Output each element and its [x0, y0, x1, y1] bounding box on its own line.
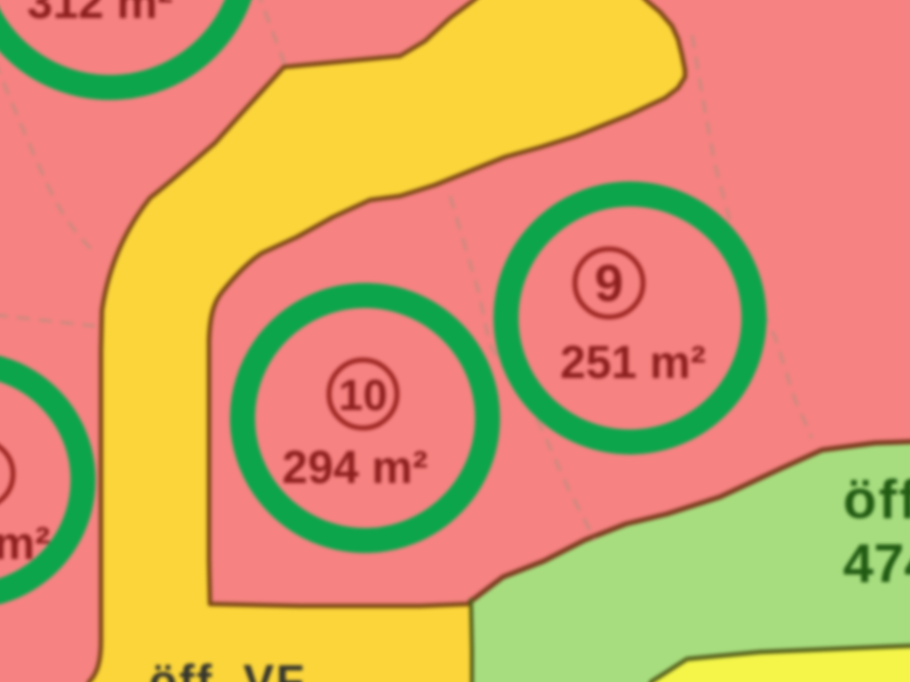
svg-text:474: 474 [843, 532, 910, 594]
svg-text:294 m²: 294 m² [282, 441, 428, 493]
svg-text:312 m²: 312 m² [27, 0, 173, 28]
svg-text:öff: öff [843, 468, 910, 530]
svg-text:251 m²: 251 m² [560, 336, 706, 388]
svg-text:öff. VF: öff. VF [149, 655, 306, 682]
svg-text:m²: m² [0, 517, 50, 569]
svg-text:9: 9 [595, 255, 624, 313]
svg-text:10: 10 [339, 371, 388, 420]
